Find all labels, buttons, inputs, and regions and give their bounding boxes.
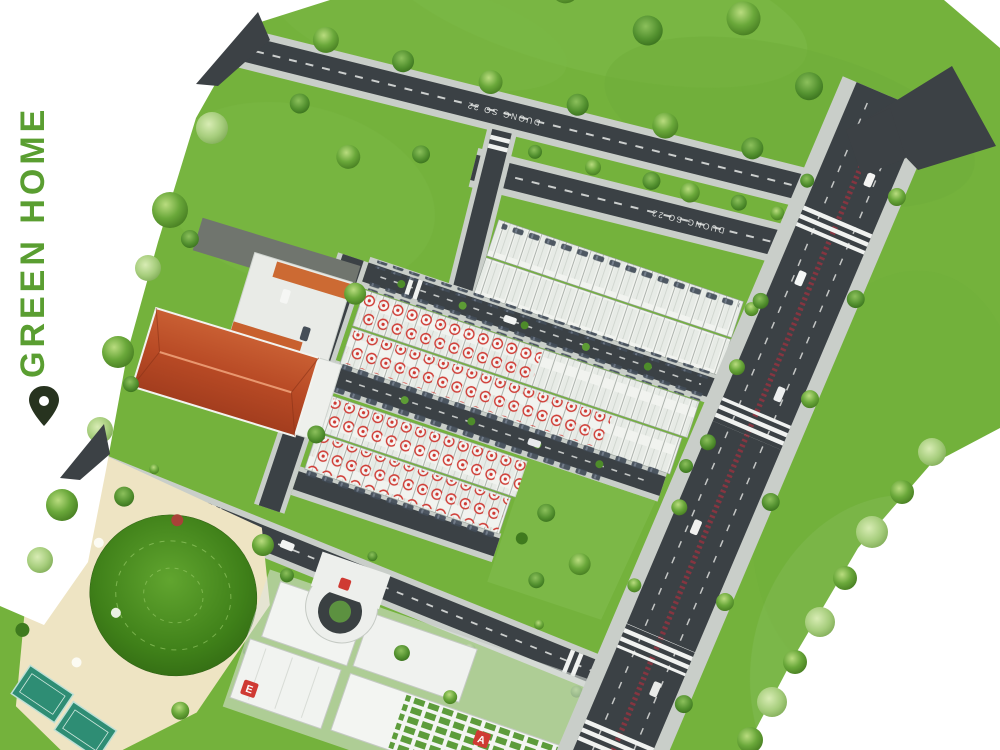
logo-text: GREEN HOME: [14, 106, 52, 378]
site-plan-canvas: DUONG SO 22 DUONG SO 22: [0, 0, 1000, 750]
master-plan-svg: DUONG SO 22 DUONG SO 22: [0, 0, 1000, 750]
